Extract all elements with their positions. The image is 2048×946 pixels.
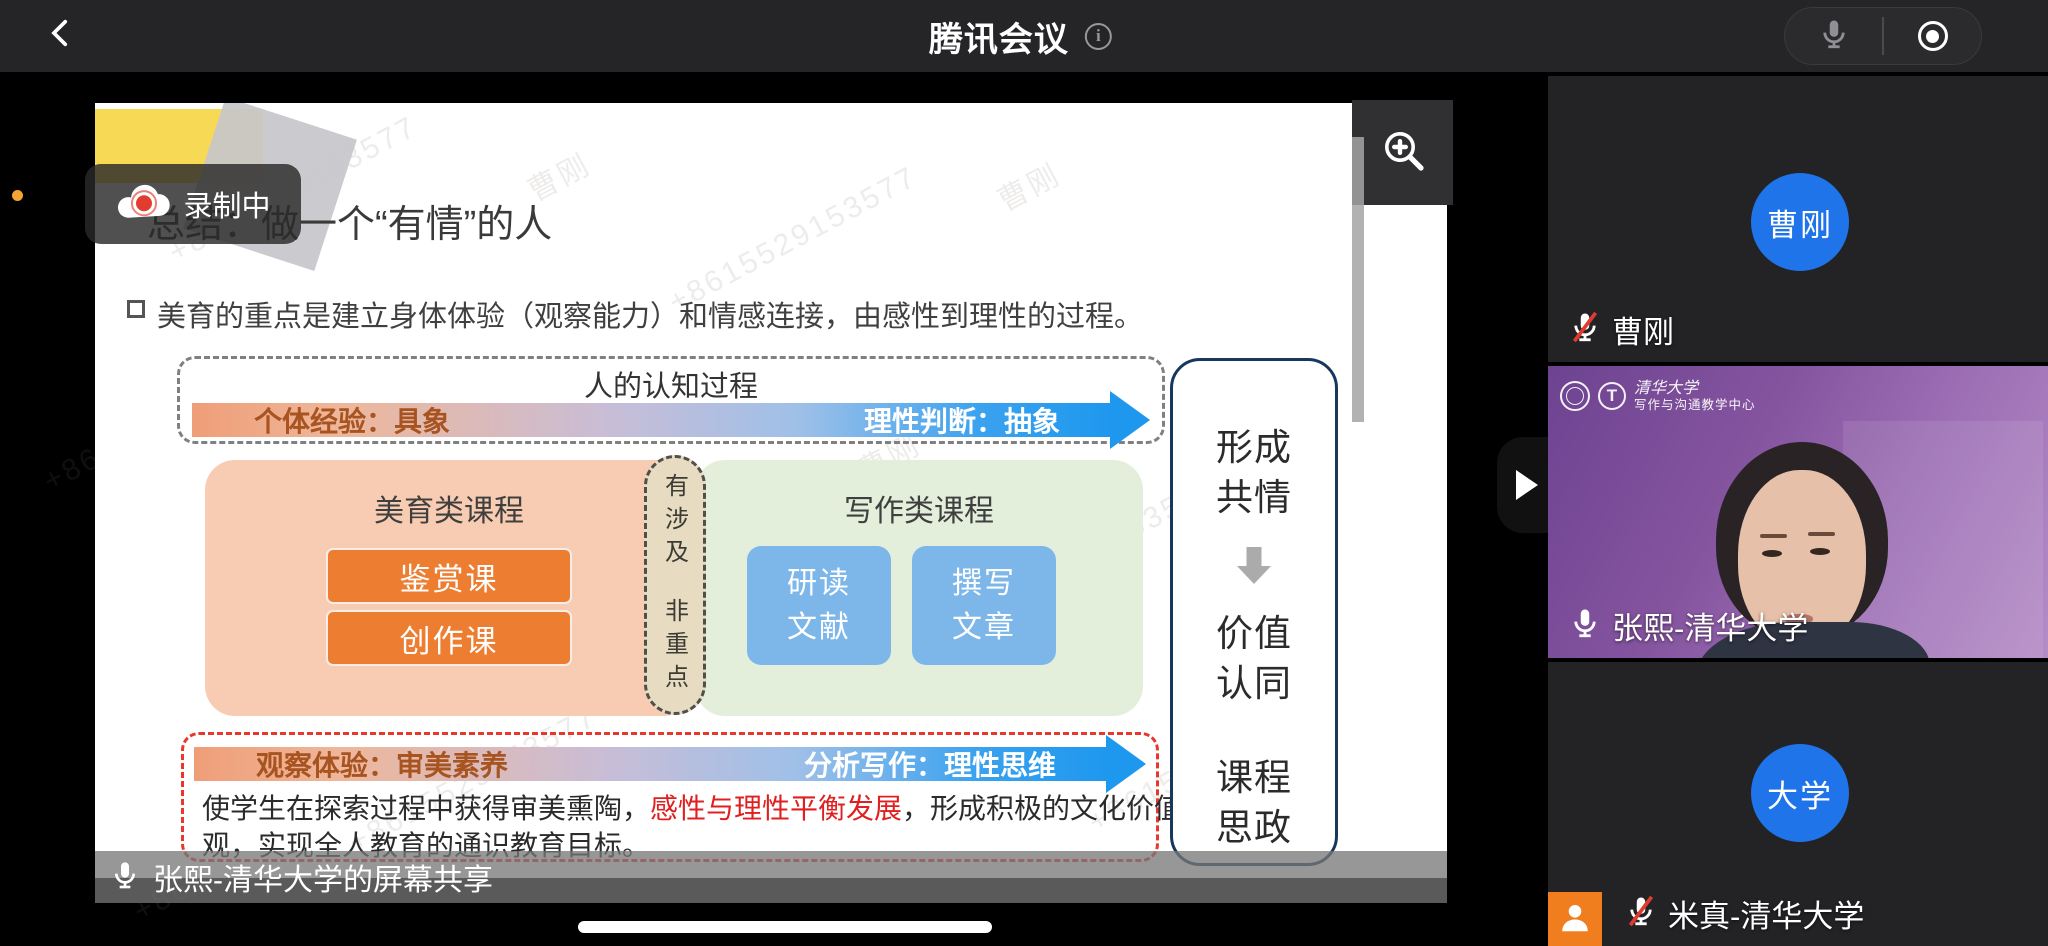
info-icon[interactable]: i [1085, 23, 1112, 50]
participant-tile-mizhen[interactable]: 大学 米真-清华大学 [1548, 662, 2048, 946]
presenter-badge [1548, 892, 1602, 946]
bottom-drag-indicator[interactable] [578, 921, 992, 933]
avatar: 大学 [1751, 744, 1849, 842]
annotation-dot [12, 190, 23, 201]
summary-gradient-arrow: 观察体验：审美素养 分析写作：理性思维 [194, 747, 1106, 781]
microphone-button[interactable] [1785, 8, 1882, 64]
record-button[interactable] [1884, 8, 1981, 64]
cognition-gradient-arrow: 个体经验：具象 理性判断：抽象 [192, 403, 1110, 437]
outcome-empathy: 形成 共情 [1216, 423, 1292, 523]
bullet-square-icon [127, 300, 145, 318]
screen-share-area: +8615529153577 +8615529153577 +861552915… [0, 72, 1548, 946]
participant-name: 曹刚 [1612, 307, 1674, 352]
write-article-box: 撰写 文章 [912, 546, 1056, 665]
participant-tile-caogang[interactable]: 曹刚 曹刚 [1548, 76, 2048, 362]
creation-course-box: 创作课 [326, 610, 572, 666]
outcome-column-box: 形成 共情 价值 认同 课程 思政 [1170, 358, 1338, 866]
cognition-process-box: 人的认知过程 个体经验：具象 理性判断：抽象 [177, 356, 1165, 444]
microphone-icon [109, 859, 141, 896]
person-brow [1808, 532, 1835, 536]
cognition-left-label: 个体经验：具象 [254, 400, 450, 440]
recording-cloud-icon [115, 180, 173, 229]
recording-label: 录制中 [183, 183, 270, 225]
recording-badge[interactable]: 录制中 [85, 164, 301, 244]
summary-left-label: 观察体验：审美素养 [256, 744, 508, 784]
watermark: 曹刚 [989, 150, 1068, 220]
university-seal-icon [1560, 381, 1590, 411]
scrollbar-thumb[interactable] [1352, 137, 1364, 422]
summary-box: 观察体验：审美素养 分析写作：理性思维 使学生在探索过程中获得审美熏陶，感性与理… [181, 732, 1159, 862]
record-icon [1918, 21, 1948, 51]
back-button[interactable] [44, 16, 84, 56]
aesthetic-panel-heading: 美育类课程 [205, 486, 693, 530]
outcome-values: 价值 认同 [1216, 609, 1292, 709]
participant-sidebar: 曹刚 曹刚 [1548, 72, 2048, 946]
microphone-muted-icon [1568, 310, 1602, 349]
overlap-capsule: 有涉及 非重点 [644, 455, 706, 715]
person-eye [1762, 550, 1782, 557]
appreciation-course-box: 鉴赏课 [326, 548, 572, 604]
participant-name: 张熙-清华大学 [1612, 603, 1808, 648]
participant-tile-zhangxi[interactable]: T 清华大学 写作与沟通教学中心 张熙-清华大学 [1548, 366, 2048, 658]
capsule-text-top: 有涉及 [658, 473, 693, 572]
center-logo-icon: T [1598, 382, 1626, 410]
aesthetic-courses-panel: 美育类课程 鉴赏课 创作课 [205, 460, 693, 716]
org-logo-text: 清华大学 写作与沟通教学中心 [1634, 380, 1756, 413]
topbar-controls [1784, 7, 1982, 65]
person-icon [1557, 899, 1593, 940]
down-arrow-icon [1231, 547, 1277, 585]
microphone-on-icon [1568, 606, 1602, 645]
person-brow [1760, 534, 1787, 538]
cognition-heading: 人的认知过程 [180, 363, 1162, 405]
person-eye [1810, 548, 1830, 555]
share-bar-label: 张熙-清华大学的屏幕共享 [153, 855, 493, 899]
top-bar: 腾讯会议 i [0, 0, 2048, 72]
sidebar-expand-handle[interactable] [1497, 437, 1548, 533]
screen-share-status-bar: 张熙-清华大学的屏幕共享 [95, 851, 1447, 903]
participant-name: 米真-清华大学 [1668, 891, 1864, 936]
microphone-icon [1817, 17, 1851, 56]
right-arrow-icon [1516, 470, 1538, 500]
participant-name-row: 曹刚 [1548, 307, 1674, 352]
summary-emphasis: 感性与理性平衡发展 [650, 793, 902, 824]
microphone-muted-icon [1624, 894, 1658, 933]
avatar: 曹刚 [1751, 173, 1849, 271]
writing-panel-heading: 写作类课程 [695, 486, 1143, 530]
participant-name-row: 米真-清华大学 [1604, 891, 1864, 936]
org-logo-row: T 清华大学 写作与沟通教学中心 [1560, 380, 1756, 413]
cognition-right-label: 理性判断：抽象 [864, 400, 1060, 440]
outcome-ideology: 课程 思政 [1216, 753, 1292, 853]
participant-name-row: 张熙-清华大学 [1548, 603, 1808, 648]
meeting-title: 腾讯会议 [929, 12, 1069, 61]
zoom-in-button[interactable] [1352, 100, 1453, 205]
capsule-text-bottom: 非重点 [658, 598, 693, 697]
read-literature-box: 研读 文献 [747, 546, 891, 665]
summary-right-label: 分析写作：理性思维 [804, 744, 1056, 784]
writing-courses-panel: 写作类课程 研读 文献 撰写 文章 [695, 460, 1143, 716]
back-chevron-icon [44, 37, 78, 54]
magnifier-plus-icon [1379, 126, 1427, 179]
slide-bullet: 美育的重点是建立身体体验（观察能力）和情感连接，由感性到理性的过程。 [127, 293, 1143, 335]
meeting-title-group: 腾讯会议 i [929, 0, 1112, 72]
